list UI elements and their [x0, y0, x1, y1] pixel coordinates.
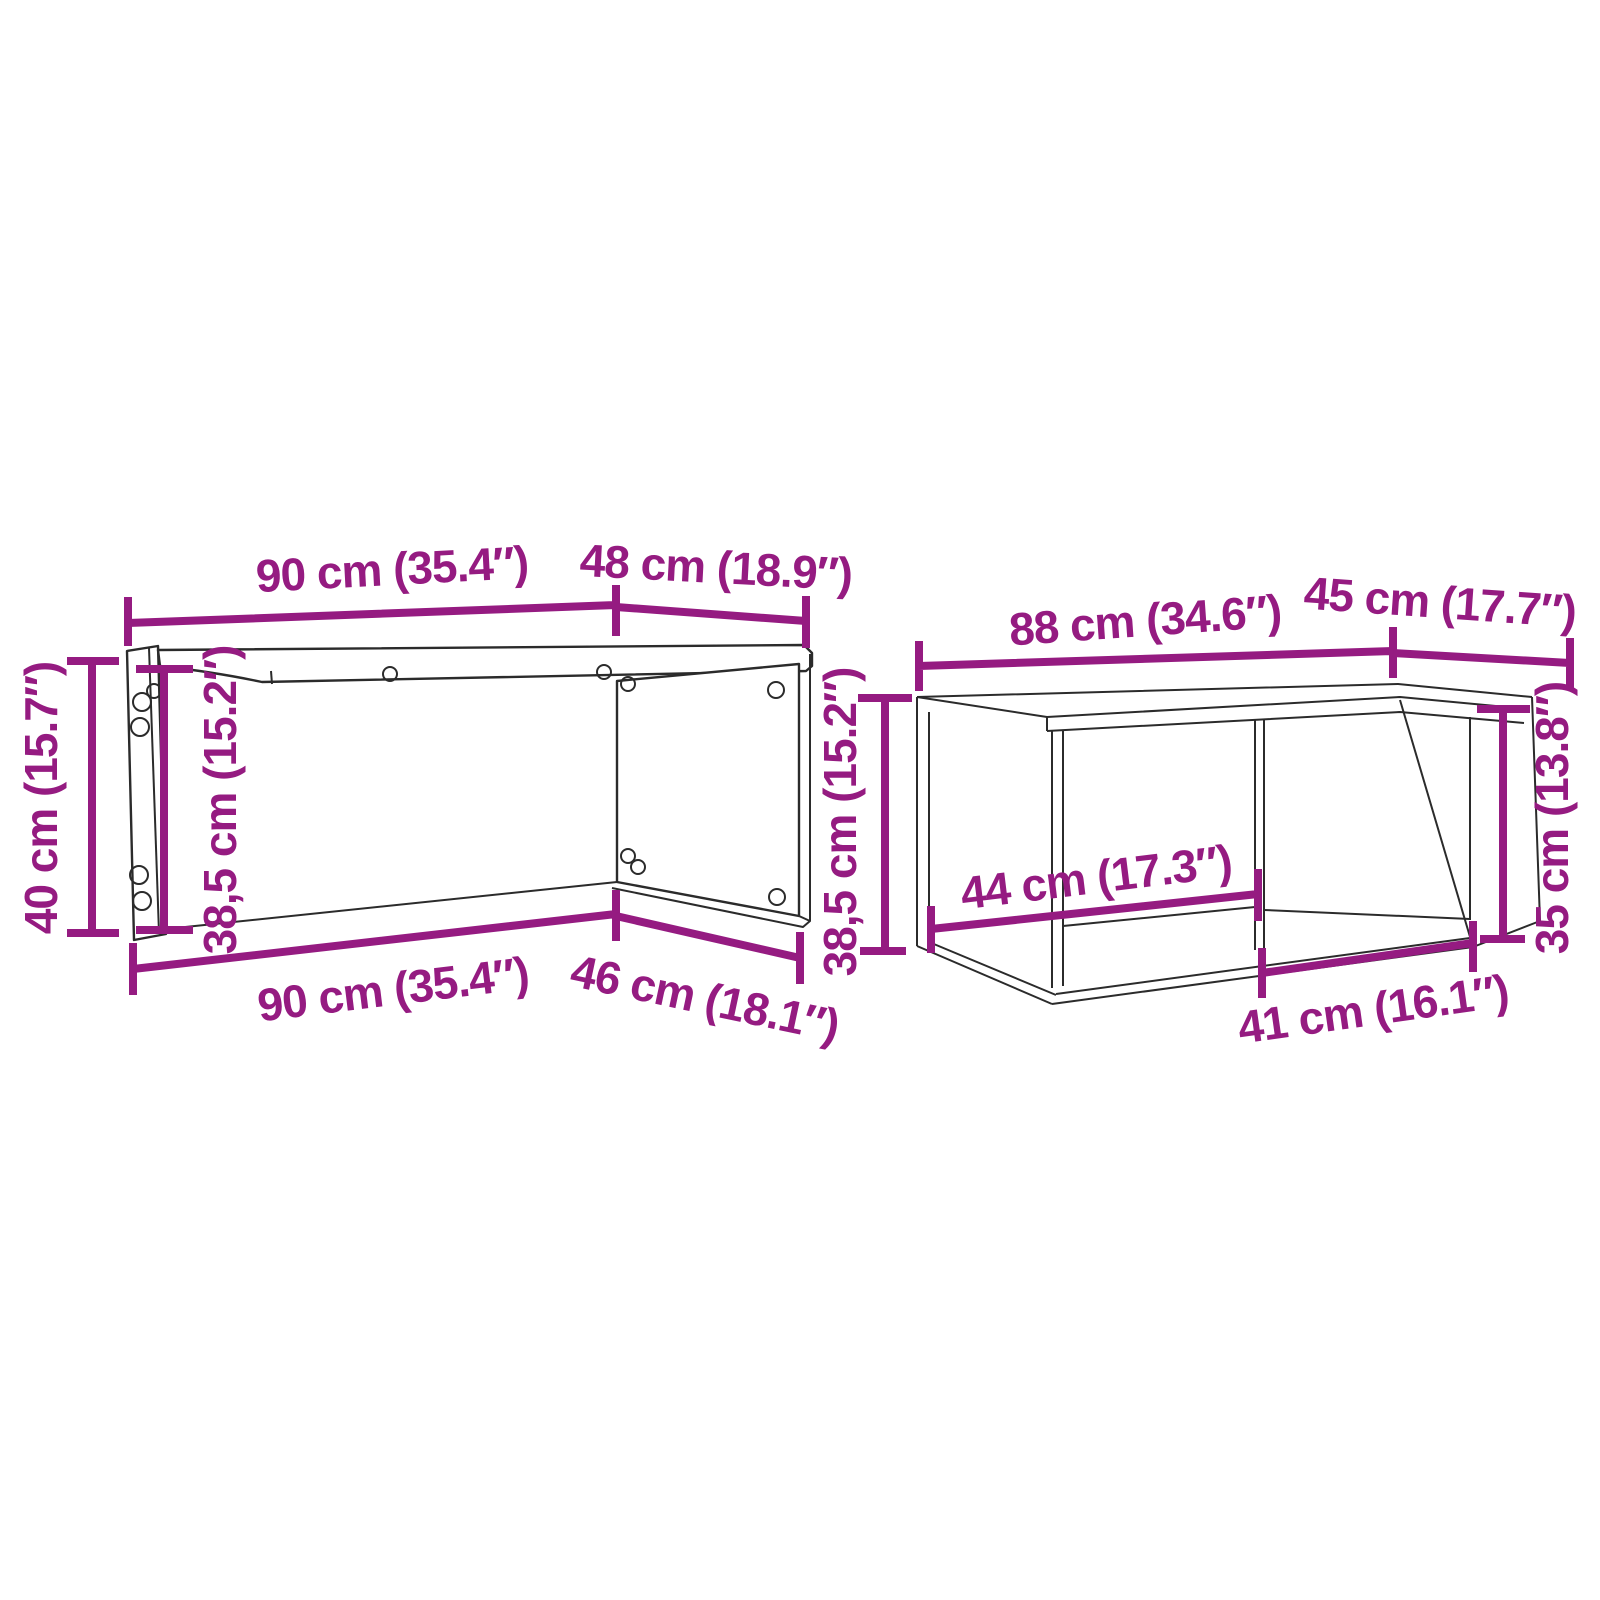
piece1-left-inner-height-label: 38,5 cm (15.2″) — [194, 646, 246, 955]
dim-piece1-left-height: 40 cm (15.7″) — [15, 661, 119, 934]
table-1-top-panel-seam — [271, 671, 272, 684]
dim-piece2-bottom-opening-width: 41 cm (16.1″) — [1234, 921, 1511, 1054]
table-2-left-bottom-edge — [917, 942, 1056, 1004]
table-1-right-panel-outer-edge — [799, 654, 810, 921]
dim-piece1-right-inner-height: 38,5 cm (15.2″) — [814, 668, 912, 977]
piece1-top-width-label: 90 cm (35.4″) — [255, 536, 530, 602]
table-2-front-right-corner — [1400, 700, 1473, 947]
piece2-top-depth-label: 45 cm (17.7″) — [1302, 567, 1577, 638]
table-2-top-band-bottom — [1047, 712, 1524, 731]
piece1-bottom-width-label: 90 cm (35.4″) — [255, 947, 532, 1032]
table-2-top-front-edge — [1047, 697, 1528, 717]
dim-piece2-opening-height: 35 cm (13.8″) — [1477, 682, 1578, 954]
table-1-right-panel — [617, 664, 799, 916]
piece2-bottom-opening-width-label: 41 cm (16.1″) — [1234, 964, 1511, 1053]
dim-piece2-top-depth: 45 cm (17.7″) — [1302, 567, 1577, 688]
dimension-diagram: 90 cm (35.4″) 48 cm (18.9″) 40 cm (15.7″… — [0, 0, 1600, 1600]
table-2-top-left-edge — [917, 697, 1047, 717]
piece2-opening-height-label: 35 cm (13.8″) — [1526, 682, 1578, 954]
dim-piece1-top-width: 90 cm (35.4″) — [128, 536, 616, 646]
piece1-left-height-label: 40 cm (15.7″) — [15, 662, 67, 934]
dim-piece1-bottom-depth: 46 cm (18.1″) — [566, 916, 843, 1052]
piece2-compartment-width-label: 44 cm (17.3″) — [958, 835, 1235, 920]
table-2-top-back-edge — [917, 684, 1532, 697]
piece1-right-inner-height-label: 38,5 cm (15.2″) — [814, 668, 866, 977]
diagram-svg: 90 cm (35.4″) 48 cm (18.9″) 40 cm (15.7″… — [0, 0, 1600, 1600]
piece2-top-width-label: 88 cm (34.6″) — [1007, 585, 1282, 656]
dim-piece2-compartment-width: 44 cm (17.3″) — [931, 835, 1258, 953]
